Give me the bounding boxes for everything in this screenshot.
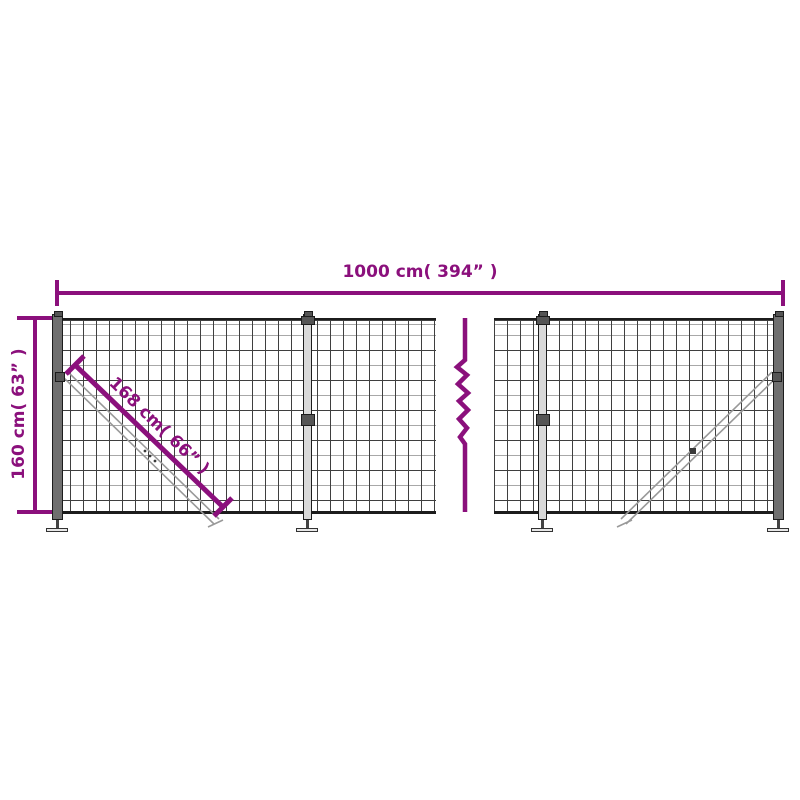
post-cap: [775, 311, 784, 317]
post-clamp: [536, 316, 550, 325]
break-symbol: [457, 318, 468, 512]
fence-post-right: [773, 314, 784, 520]
fence-mesh-panel-left: [57, 318, 436, 514]
width-dimension-right-tick: [781, 280, 785, 306]
fence-dimension-diagram: 1000 cm( 394” ) 160 cm( 63” ): [0, 0, 800, 800]
post-foot-plate: [531, 528, 553, 532]
post-clamp: [55, 372, 65, 382]
post-foot-plate: [296, 528, 318, 532]
height-dimension-bottom-tick: [17, 510, 54, 514]
post-foot-plate: [767, 528, 789, 532]
post-foot-plate: [46, 528, 68, 532]
post-clamp: [772, 372, 782, 382]
post-clamp: [536, 414, 550, 426]
fence-post-left: [52, 314, 63, 520]
post-clamp: [301, 414, 315, 426]
post-clamp: [301, 316, 315, 325]
height-dimension-line: [33, 318, 37, 512]
height-dimension-top-tick: [17, 316, 54, 320]
width-dimension-left-tick: [55, 280, 59, 306]
post-cap: [54, 311, 63, 317]
height-dimension-label: 160 cm( 63” ): [8, 314, 30, 514]
width-dimension-label: 1000 cm( 394” ): [290, 261, 550, 283]
width-dimension-line: [57, 291, 783, 295]
